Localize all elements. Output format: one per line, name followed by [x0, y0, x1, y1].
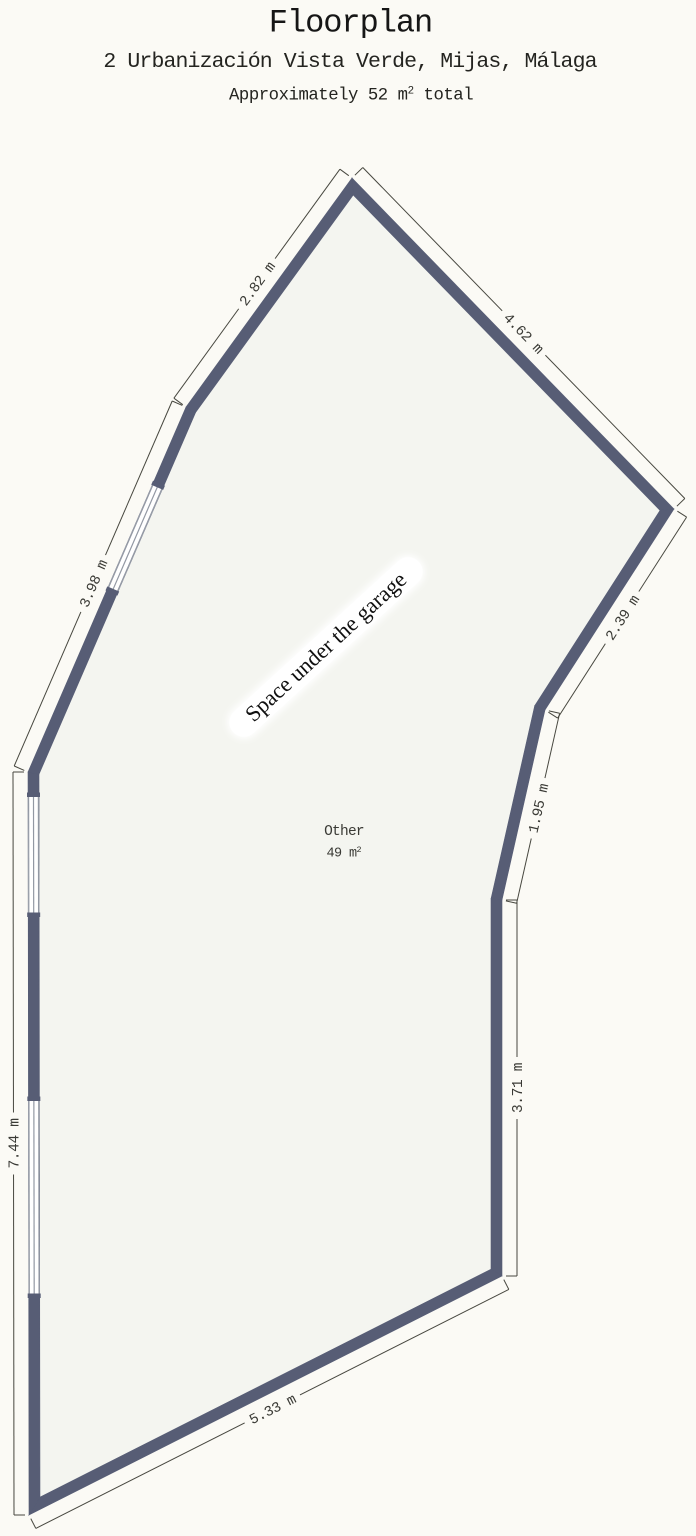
svg-text:Approximately 52 m2 total: Approximately 52 m2 total	[229, 86, 473, 106]
svg-text:Floorplan: Floorplan	[269, 5, 432, 42]
svg-text:49 m2: 49 m2	[327, 845, 362, 862]
svg-text:7.44 m: 7.44 m	[7, 1118, 23, 1168]
svg-text:3.71 m: 3.71 m	[511, 1063, 527, 1113]
svg-text:2 Urbanización Vista Verde, Mi: 2 Urbanización Vista Verde, Mijas, Málag…	[103, 50, 597, 74]
svg-text:Other: Other	[324, 824, 364, 840]
